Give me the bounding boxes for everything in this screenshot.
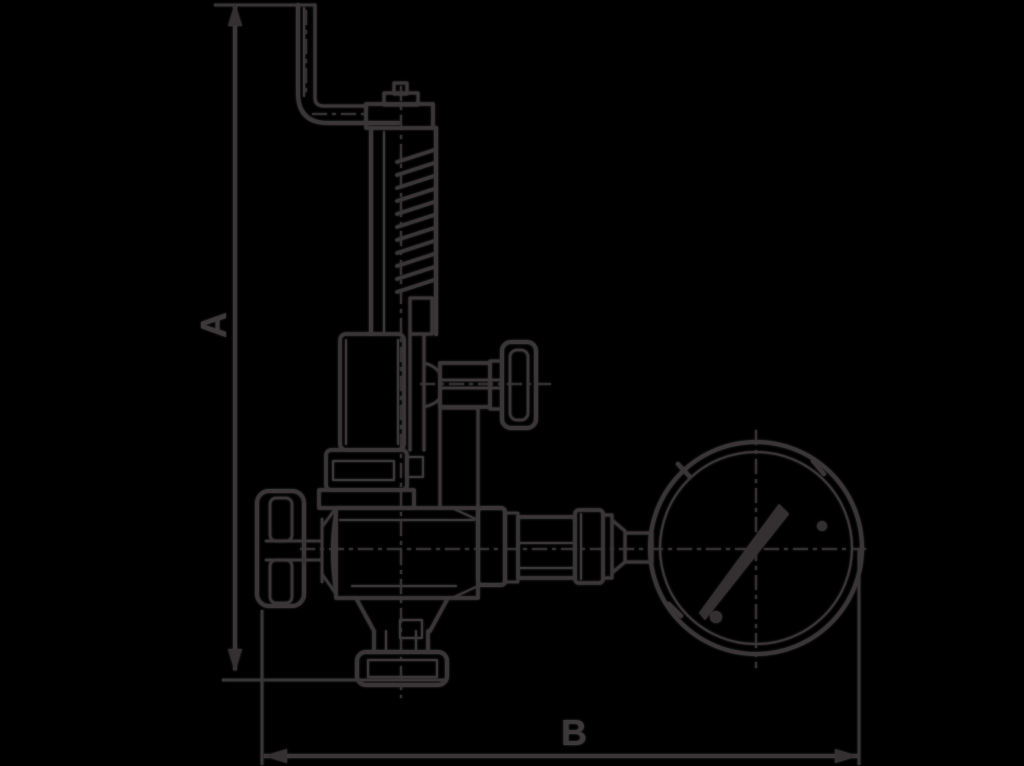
body-bottom-right-chamfer [452, 586, 478, 598]
dim-a-arrow-up [228, 3, 242, 26]
connection-flange-1 [478, 508, 505, 585]
centerlines [300, 10, 868, 698]
branch-neck-top [424, 363, 440, 374]
dim-a-label: A [193, 312, 234, 338]
dim-b-arrow-right [835, 749, 858, 763]
gauge-connection [478, 508, 652, 585]
reducer-cone [612, 520, 625, 573]
bonnet [340, 334, 478, 508]
body-outline [336, 508, 478, 598]
flange-stack [319, 450, 414, 508]
dim-a-arrow-down [228, 649, 242, 672]
upper-flange-detail [333, 461, 394, 480]
main-handwheel-rim [257, 491, 304, 606]
gauge-screw-lower [710, 611, 722, 623]
pipe-inner-edge [315, 5, 366, 106]
right-column [440, 408, 478, 508]
spindle-guide-block [410, 298, 432, 334]
main-handwheel-spoke-bottom [270, 560, 292, 603]
valve-technical-drawing: A B [0, 0, 1024, 766]
bonnet-housing [340, 334, 404, 450]
branch-pipe [440, 363, 490, 407]
gauge-needle [699, 504, 789, 620]
dim-b-label: B [561, 712, 587, 753]
coil-spring [397, 150, 434, 292]
body-taper-left [356, 598, 374, 631]
spring-section [371, 128, 436, 334]
main-handwheel-spoke-top [270, 498, 292, 541]
body-taper-right [430, 598, 448, 631]
side-handwheel-rim [502, 342, 536, 428]
dim-b-arrow-left [264, 749, 287, 763]
lower-flange [319, 490, 414, 508]
branch-neck-bottom [424, 398, 440, 407]
dimension-b: B [262, 548, 859, 765]
connection-flange-2 [575, 510, 603, 583]
drain-boss [400, 620, 422, 638]
side-handwheel-hub [510, 350, 528, 420]
gauge-screw-upper [817, 521, 827, 531]
base-flange-detail [368, 660, 437, 677]
gauge-stem-pipe [625, 533, 652, 562]
main-body [333, 508, 479, 652]
body-top-right-chamfer [452, 508, 478, 520]
